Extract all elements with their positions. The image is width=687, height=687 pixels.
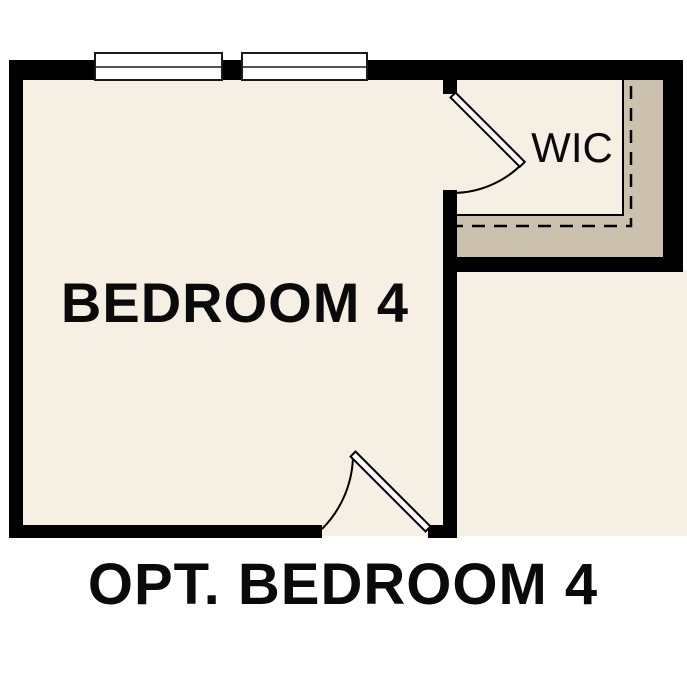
floor-plan-image: BEDROOM 4 WIC OPT. BEDROOM 4 <box>0 0 687 687</box>
right-wall <box>663 60 683 272</box>
bottom-door-stub <box>428 525 457 538</box>
bottom-wall <box>9 525 322 538</box>
wic-bottom-wall <box>443 257 683 272</box>
bedroom-label: BEDROOM 4 <box>61 271 409 334</box>
wic-label: WIC <box>531 124 613 171</box>
window-top-right <box>242 53 367 80</box>
left-wall <box>9 60 23 538</box>
floor-plan-canvas: BEDROOM 4 WIC OPT. BEDROOM 4 <box>0 0 687 687</box>
plan-caption: OPT. BEDROOM 4 <box>88 552 598 617</box>
window-top-left <box>95 53 222 80</box>
bedroom-right-wall <box>443 190 457 538</box>
hall-floor <box>450 270 687 536</box>
